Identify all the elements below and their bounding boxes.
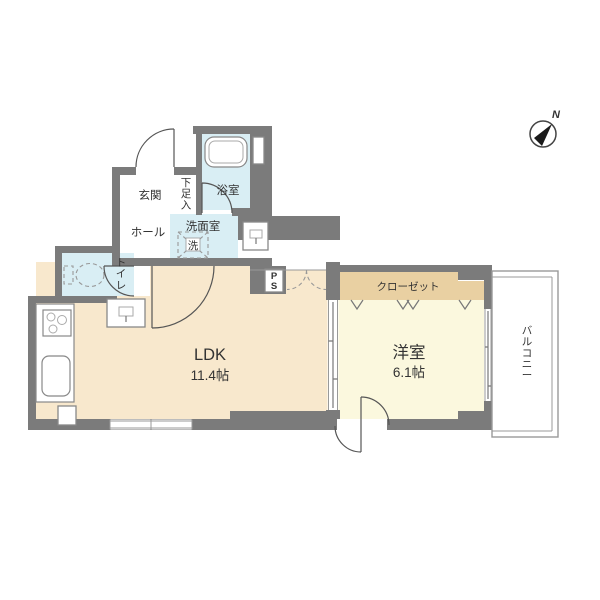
wall-segment <box>28 296 36 426</box>
room-label-toilet: トイレ <box>116 257 127 291</box>
basin-box <box>107 299 145 327</box>
entrance-door-arc <box>136 129 174 167</box>
room-label-hall: ホール <box>131 226 166 239</box>
wall-segment <box>28 296 117 303</box>
floorplan-canvas: PS <box>0 0 600 600</box>
room-label-closet: クローゼット <box>377 281 440 293</box>
sliding-partition <box>328 300 339 410</box>
room-label-shoe-storage: 下足入 <box>181 177 192 211</box>
duct-box <box>253 137 264 164</box>
pipe-space-label: PS <box>271 271 278 292</box>
wall-segment <box>458 411 484 420</box>
bathtub-icon <box>205 137 247 167</box>
wall-segment <box>174 167 198 175</box>
wall-segment <box>55 246 120 253</box>
wall-segment <box>232 208 272 216</box>
washer-label: 洗 <box>188 240 199 252</box>
western-room-doorway <box>337 419 387 430</box>
ldk-window <box>110 420 192 430</box>
toilet-doorway <box>134 266 150 296</box>
room-label-western-room: 洋室 <box>393 343 426 362</box>
wall-segment <box>484 265 492 309</box>
pipe-space-box: PS <box>265 269 283 292</box>
wall-segment <box>55 246 62 303</box>
stove-icon <box>43 310 71 336</box>
wall-segment <box>193 126 272 134</box>
room-label-bathroom: 浴室 <box>217 183 240 197</box>
compass-north-label: N <box>552 109 561 121</box>
room-label-genkan: 玄関 <box>139 188 162 202</box>
room-label-balcony: バルコニー <box>522 325 533 382</box>
wall-segment <box>196 134 202 215</box>
room-label-washroom: 洗面室 <box>186 219 221 233</box>
room-area-western-room: 6.1帖 <box>393 365 425 380</box>
sink-icon <box>42 356 70 396</box>
compass-north-icon: N <box>530 109 561 147</box>
wall-segment <box>120 258 272 266</box>
room-area-ldk: 11.4帖 <box>191 368 230 383</box>
utility-box <box>243 222 268 250</box>
kitchen-counter <box>36 304 74 402</box>
wall-segment <box>230 411 331 421</box>
room-label-ldk: LDK <box>194 346 226 364</box>
balcony-window <box>484 309 492 401</box>
pillar-box <box>58 406 76 425</box>
